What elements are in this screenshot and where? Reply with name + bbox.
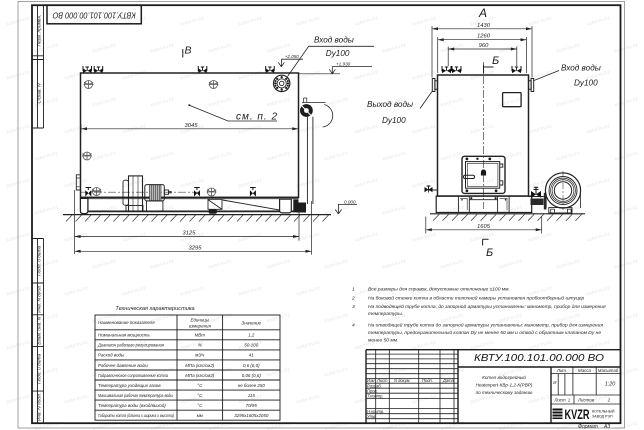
svg-text:Гидравлическое сопротивление к: Гидравлическое сопротивление котла	[98, 373, 168, 378]
svg-text:КОТЕЛЬНЫЙ: КОТЕЛЬНЫЙ	[592, 410, 615, 414]
svg-text:3125: 3125	[183, 231, 197, 237]
svg-text:Взам. инв. N: Взам. инв. N	[37, 316, 43, 344]
svg-text:2: 2	[607, 398, 611, 403]
svg-text:+1.930: +1.930	[336, 61, 351, 66]
svg-text:Б: Б	[492, 55, 499, 67]
svg-text:Подп.: Подп.	[422, 378, 433, 383]
svg-text:Утв.: Утв.	[367, 414, 376, 419]
svg-text:°С: °С	[197, 383, 203, 388]
svg-text:Т.контр.: Т.контр.	[367, 394, 384, 399]
svg-text:измерения: измерения	[189, 323, 212, 328]
svg-text:0.000: 0.000	[344, 199, 356, 204]
svg-text:Наименование показателя: Наименование показателя	[98, 320, 155, 325]
svg-text:°С: °С	[197, 393, 203, 398]
svg-text:70/95: 70/95	[246, 403, 258, 408]
svg-text:1605: 1605	[477, 224, 491, 230]
svg-text:КВТУ.100.101.00.000 ВО: КВТУ.100.101.00.000 ВО	[474, 352, 604, 364]
svg-text:Справ. N: Справ. N	[37, 83, 43, 104]
svg-text:960: 960	[479, 43, 489, 49]
svg-text:Масса: Масса	[578, 368, 592, 373]
svg-text:Dy100: Dy100	[574, 79, 598, 88]
svg-text:Техническая характеристика: Техническая характеристика	[115, 306, 194, 312]
svg-text:Температура уходящих газов: Температура уходящих газов	[98, 383, 161, 388]
svg-text:%: %	[198, 343, 202, 348]
svg-text:КВТУ.100.101.00.000 ВО: КВТУ.100.101.00.000 ВО	[52, 11, 135, 21]
svg-text:Вход воды: Вход воды	[561, 64, 601, 73]
svg-text:В: В	[185, 45, 192, 57]
svg-text:температуры, предохранительный: температуры, предохранительный клапан Dу…	[368, 329, 601, 336]
svg-text:Единицы: Единицы	[191, 317, 210, 322]
svg-text:Диапазон рабочего регулировани: Диапазон рабочего регулирования	[97, 343, 164, 348]
svg-text:115: 115	[248, 393, 256, 398]
svg-text:не более 250: не более 250	[238, 383, 266, 388]
svg-text:Лист: Лист	[553, 398, 566, 403]
svg-text:Дата: Дата	[442, 378, 455, 383]
svg-text:Рабочее давление воды: Рабочее давление воды	[98, 363, 148, 368]
svg-text:N докум.: N докум.	[394, 378, 411, 383]
svg-text:м3/ч: м3/ч	[195, 353, 205, 358]
svg-text:Котел водогрейный: Котел водогрейный	[482, 374, 526, 380]
svg-text:41: 41	[249, 353, 254, 358]
svg-text:Инв. N дубл.: Инв. N дубл.	[37, 285, 43, 313]
svg-text:мм: мм	[197, 413, 203, 418]
svg-text:МПа (кгс/см2): МПа (кгс/см2)	[185, 363, 215, 368]
svg-text:KVZR: KVZR	[565, 407, 590, 422]
svg-text:А3: А3	[603, 424, 610, 430]
svg-text:3295х1605х2050: 3295х1605х2050	[234, 413, 269, 418]
svg-text:Листов: Листов	[577, 398, 595, 403]
svg-text:Значение: Значение	[242, 320, 262, 325]
svg-text:4: 4	[352, 322, 355, 328]
svg-text:1260: 1260	[477, 34, 491, 40]
svg-text:3: 3	[352, 304, 355, 310]
svg-text:см. п. 2: см. п. 2	[236, 112, 278, 123]
svg-text:ЗАВОД РЭП: ЗАВОД РЭП	[592, 415, 613, 419]
svg-text:Перв. примен.: Перв. примен.	[37, 15, 43, 47]
svg-text:Масштаб: Масштаб	[598, 368, 619, 373]
svg-text:°С: °С	[197, 403, 203, 408]
svg-text:А: А	[478, 6, 487, 20]
svg-text:Подп. и дата: Подп. и дата	[37, 245, 43, 275]
svg-text:+2.050: +2.050	[285, 54, 300, 59]
svg-text:МВт: МВт	[195, 333, 206, 338]
svg-text:Габариты котла (длинна х ширин: Габариты котла (длинна х ширина х высота…	[98, 413, 174, 418]
svg-text:Вход воды: Вход воды	[314, 36, 354, 45]
svg-text:Температура воды (вход/выход): Температура воды (вход/выход)	[98, 403, 166, 408]
svg-text:Выход воды: Выход воды	[367, 100, 413, 109]
svg-text:На боковой стенке котла в обла: На боковой стенке котла в области топочн…	[368, 295, 584, 302]
svg-text:3045: 3045	[185, 123, 199, 129]
svg-text:0,06 (0,6): 0,06 (0,6)	[242, 373, 262, 378]
svg-text:50-100: 50-100	[244, 343, 258, 348]
svg-text:Heatexpert-КВр-1,2-К(РВР): Heatexpert-КВр-1,2-К(РВР)	[476, 383, 533, 388]
svg-text:1,2: 1,2	[248, 333, 255, 338]
svg-text:Подп. и дата: Подп. и дата	[37, 354, 43, 384]
svg-text:1: 1	[352, 287, 355, 293]
svg-text:На отводящей трубе котла до за: На отводящей трубе котла до запорной арм…	[368, 321, 603, 328]
svg-text:1:20: 1:20	[605, 382, 616, 388]
svg-text:1430: 1430	[477, 23, 491, 29]
svg-text:Б: Б	[486, 247, 493, 259]
svg-text:Лит.: Лит.	[556, 368, 567, 373]
svg-text:2: 2	[351, 296, 355, 302]
svg-text:Dy100: Dy100	[326, 49, 350, 58]
svg-text:по техническому заданию: по техническому заданию	[476, 390, 533, 395]
svg-text:МПа (кгс/см2): МПа (кгс/см2)	[185, 373, 215, 378]
svg-text:0,6 (6,0): 0,6 (6,0)	[243, 363, 260, 368]
svg-text:Все размеры для справок, допус: Все размеры для справок, допустимые откл…	[368, 287, 510, 293]
svg-text:Номинальная мощность: Номинальная мощность	[98, 333, 151, 338]
svg-text:Максимальная рабочая температу: Максимальная рабочая температура воды	[98, 393, 174, 398]
svg-text:Инв. N подл.: Инв. N подл.	[37, 393, 43, 421]
svg-text:Dy100: Dy100	[382, 116, 406, 125]
svg-text:Расход воды: Расход воды	[98, 353, 125, 358]
svg-text:менее 50 мм.: менее 50 мм.	[368, 337, 398, 343]
svg-text:температуры.: температуры.	[368, 312, 403, 317]
svg-text:3295: 3295	[189, 245, 203, 251]
svg-text:На подводящей трубе котла, до: На подводящей трубе котла, до запорной а…	[368, 303, 606, 310]
svg-text:Формат: Формат	[578, 424, 598, 430]
